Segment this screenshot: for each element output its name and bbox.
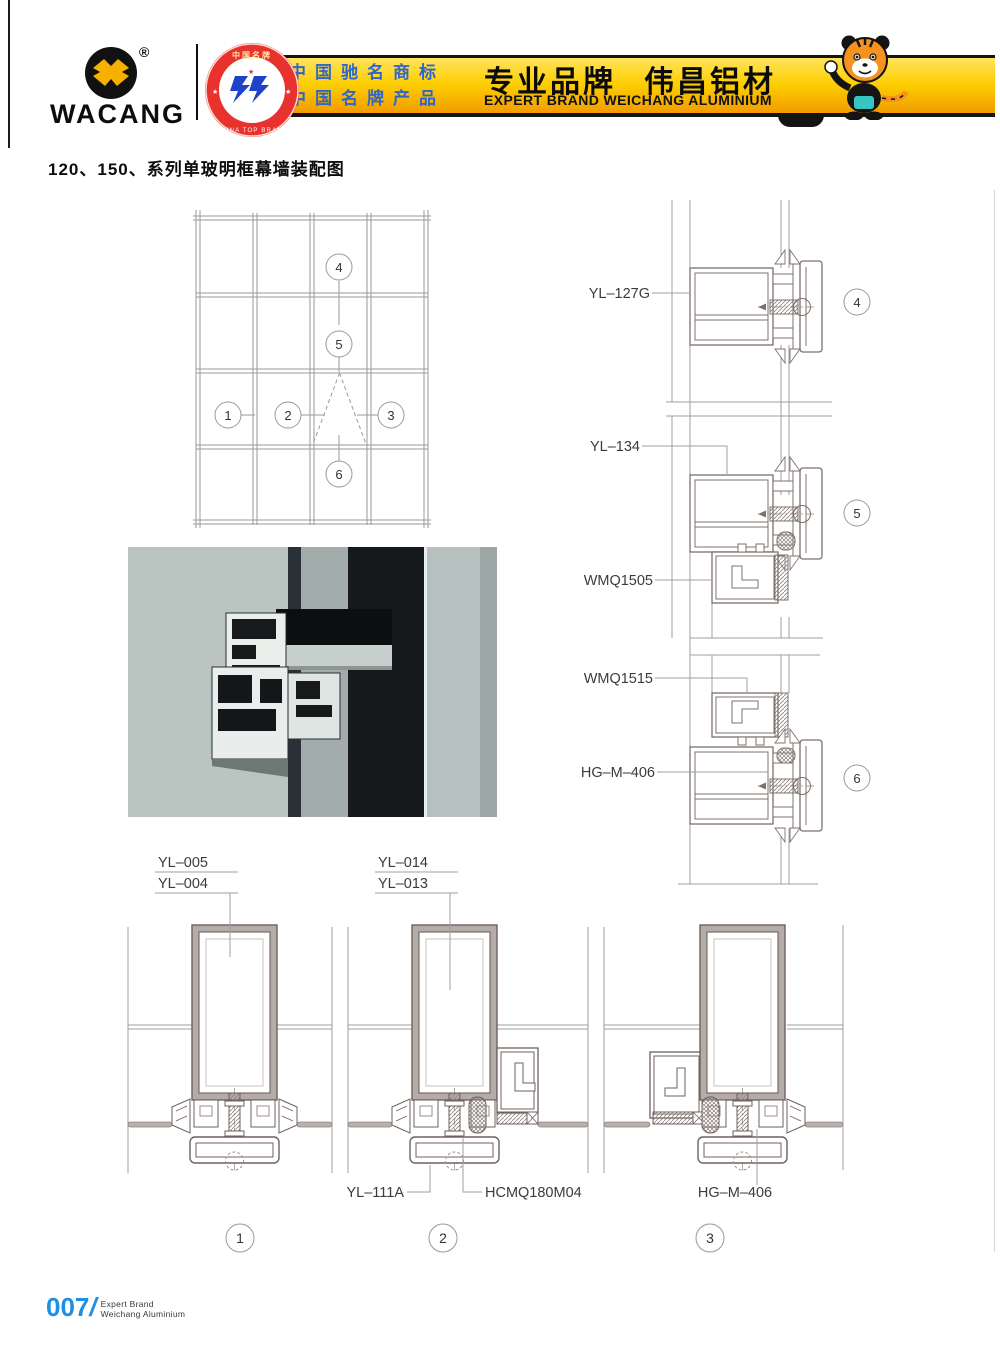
curtain-wall-elevation: 4 5 6 1 2 3 — [185, 205, 435, 535]
callout-6-detail: 6 — [853, 771, 860, 786]
label-yl014: YL–014 — [378, 855, 428, 871]
badge-top-text: 中国名牌 — [232, 50, 272, 60]
logo-wordmark: WACANG — [50, 99, 185, 130]
banner-subtitle-en: EXPERT BRAND WEICHANG ALUMINIUM — [484, 92, 772, 108]
label-yl005: YL–005 — [158, 855, 208, 871]
label-yl127g: YL–127G — [589, 286, 650, 302]
badge-red-star: ★ — [248, 68, 254, 76]
catalog-page: ® WACANG 中国驰名商标 中国名牌产品 专业品牌伟昌铝材 EXPERT B… — [0, 0, 1000, 1357]
footer-tagline-line2: Weichang Aluminium — [101, 1309, 186, 1319]
label-hgm406-bottom: HG–M–406 — [698, 1185, 772, 1201]
page-number-slash: / — [89, 1292, 96, 1322]
callout-4-detail: 4 — [853, 295, 860, 310]
wacang-logo-icon — [84, 46, 138, 100]
registered-mark: ® — [139, 44, 149, 60]
callout-1: 1 — [224, 408, 231, 423]
callout-4: 4 — [335, 260, 342, 275]
callout-2-detail: 2 — [439, 1230, 447, 1246]
section-detail-6 — [690, 693, 822, 842]
label-wmq1515: WMQ1515 — [584, 671, 653, 687]
label-hgm406-top: HG–M–406 — [581, 765, 655, 781]
credential-text: 中国驰名商标 中国名牌产品 — [289, 60, 445, 112]
tiger-mascot — [812, 26, 912, 120]
credential-line1: 中国驰名商标 — [289, 60, 445, 86]
plan-detail-2 — [392, 925, 538, 1173]
section-detail-5 — [690, 457, 822, 603]
section-labels: YL–127G YL–134 WMQ1505 WMQ1515 HG–M–406 — [581, 286, 655, 781]
label-yl134: YL–134 — [590, 439, 640, 455]
profile-photo — [128, 547, 497, 817]
badge-star-left: ★ — [212, 88, 218, 96]
plan-callouts: 1 2 3 — [226, 1224, 724, 1252]
horizontal-plan-details: YL–005 YL–004 YL–014 YL–013 YL–111A HCMQ… — [100, 845, 1000, 1265]
vertical-section-details: YL–127G YL–134 WMQ1505 WMQ1515 HG–M–406 … — [560, 188, 1000, 900]
section-detail-4 — [690, 250, 822, 363]
plan-detail-3 — [650, 925, 805, 1173]
footer: 007/Expert Brand Weichang Aluminium — [46, 1292, 185, 1323]
credential-line2: 中国名牌产品 — [289, 86, 445, 112]
badge-bottom-text: CHINA TOP BRAND — [216, 128, 289, 134]
page-spine-line — [8, 0, 10, 148]
plan-detail-1 — [172, 925, 297, 1173]
callout-3-detail: 3 — [706, 1230, 714, 1246]
label-yl111a: YL–111A — [346, 1185, 404, 1201]
callout-5: 5 — [335, 337, 342, 352]
page-title: 120、150、系列单玻明框幕墙装配图 — [48, 155, 345, 180]
label-yl013: YL–013 — [378, 876, 428, 892]
page-number: 007 — [46, 1292, 89, 1322]
callout-3: 3 — [387, 408, 394, 423]
china-top-brand-badge: 中国名牌 CHINA TOP BRAND ★ ★ ★ — [204, 42, 300, 138]
badge-star-right: ★ — [285, 88, 291, 96]
elevation-grid — [193, 210, 431, 528]
footer-tagline-line1: Expert Brand — [101, 1299, 154, 1309]
section-callouts: 4 5 6 — [844, 289, 870, 791]
callout-6: 6 — [335, 467, 342, 482]
label-wmq1505: WMQ1505 — [584, 573, 653, 589]
label-hcmq180m04: HCMQ180M04 — [485, 1185, 582, 1201]
header-divider — [196, 44, 198, 120]
callout-1-detail: 1 — [236, 1230, 244, 1246]
callout-2: 2 — [284, 408, 291, 423]
label-yl004: YL–004 — [158, 876, 208, 892]
footer-tagline: Expert Brand Weichang Aluminium — [101, 1299, 186, 1319]
callout-5-detail: 5 — [853, 506, 860, 521]
openable-vent-symbol — [313, 373, 366, 444]
